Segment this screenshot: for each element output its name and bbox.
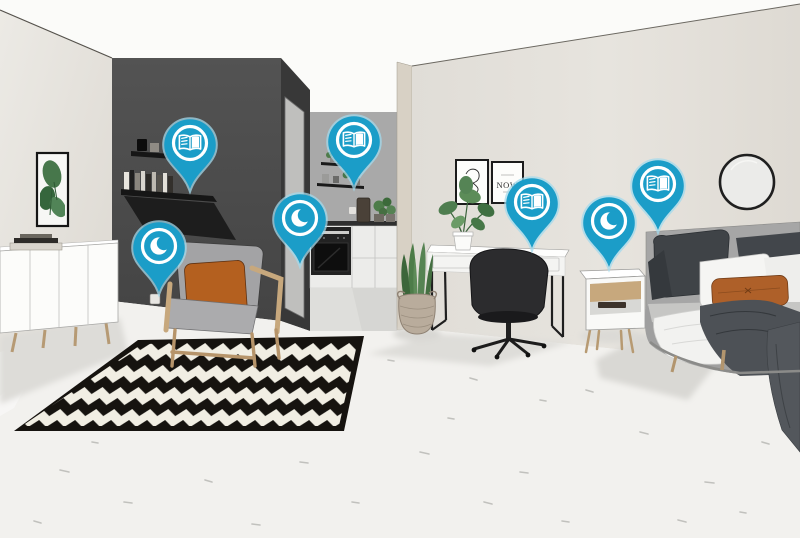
pin-marker-shape: [506, 178, 558, 248]
pin-kitchen-shelf[interactable]: [324, 110, 384, 192]
pin-armchair[interactable]: [129, 216, 189, 298]
pin-marker-shape: [164, 119, 216, 189]
pin-marker-shape: [632, 160, 684, 230]
pin-wall-shelf[interactable]: [160, 113, 220, 195]
pin-marker-shape: [133, 222, 185, 292]
pin-bed[interactable]: [628, 154, 688, 236]
pin-desk[interactable]: [502, 172, 562, 254]
room-scene: NOW: [0, 0, 800, 538]
pin-layer: [0, 0, 800, 538]
pin-marker-shape: [328, 116, 380, 186]
pin-marker-shape: [274, 194, 326, 264]
pin-kitchen-counter[interactable]: [270, 188, 330, 270]
